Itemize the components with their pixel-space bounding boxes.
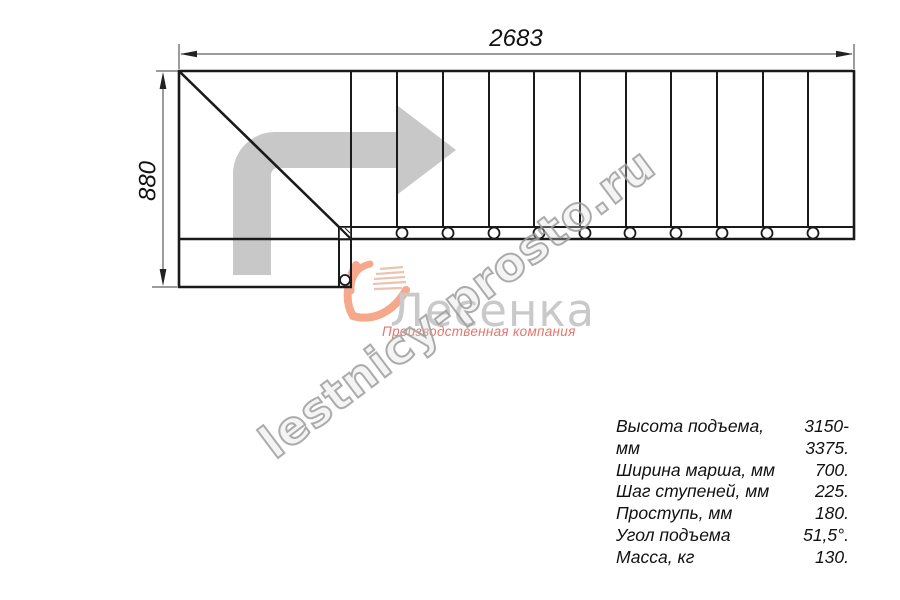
spec-row: Высота подъема, мм 3150-3375. bbox=[616, 416, 849, 460]
spec-value: 225. bbox=[815, 481, 849, 503]
spec-value: 51,5°. bbox=[803, 525, 849, 547]
dim-arrow-up-icon bbox=[160, 72, 167, 89]
spec-value: 700. bbox=[815, 460, 849, 482]
baluster-circle bbox=[762, 228, 773, 239]
dim-arrow-left-icon bbox=[180, 51, 197, 57]
baluster-circle bbox=[397, 228, 408, 239]
spec-label: Угол подъема bbox=[616, 525, 731, 547]
left-dimension-label: 880 bbox=[134, 160, 161, 201]
spec-label: Масса, кг bbox=[616, 547, 694, 569]
spec-value: 130. bbox=[815, 547, 849, 569]
baluster-circle bbox=[340, 275, 350, 285]
spec-row: Проступь, мм 180. bbox=[616, 503, 849, 525]
hatch-square bbox=[339, 227, 351, 239]
baluster-circle bbox=[717, 228, 728, 239]
baluster-circle bbox=[671, 228, 682, 239]
spec-row: Ширина марша, мм 700. bbox=[616, 460, 849, 482]
direction-arrow-icon bbox=[233, 106, 456, 275]
spec-label: Шаг ступеней, мм bbox=[616, 481, 769, 503]
dim-arrow-down-icon bbox=[160, 269, 167, 286]
spec-label: Проступь, мм bbox=[616, 503, 732, 525]
top-dimension-label: 2683 bbox=[488, 25, 543, 52]
stair-drawing-page: Лесенка Производственная компания bbox=[0, 0, 900, 600]
spec-label: Высота подъема, мм bbox=[616, 416, 771, 460]
dim-arrow-right-icon bbox=[836, 51, 853, 57]
spec-row: Угол подъема 51,5°. bbox=[616, 525, 849, 547]
spec-value: 3150-3375. bbox=[771, 416, 849, 460]
baluster-circle bbox=[443, 228, 454, 239]
spec-label: Ширина марша, мм bbox=[616, 460, 775, 482]
spec-row: Масса, кг 130. bbox=[616, 547, 849, 569]
spec-row: Шаг ступеней, мм 225. bbox=[616, 481, 849, 503]
baluster-circle bbox=[808, 228, 819, 239]
specs-table: Высота подъема, мм 3150-3375. Ширина мар… bbox=[616, 416, 849, 569]
spec-value: 180. bbox=[815, 503, 849, 525]
baluster-circle bbox=[625, 228, 636, 239]
